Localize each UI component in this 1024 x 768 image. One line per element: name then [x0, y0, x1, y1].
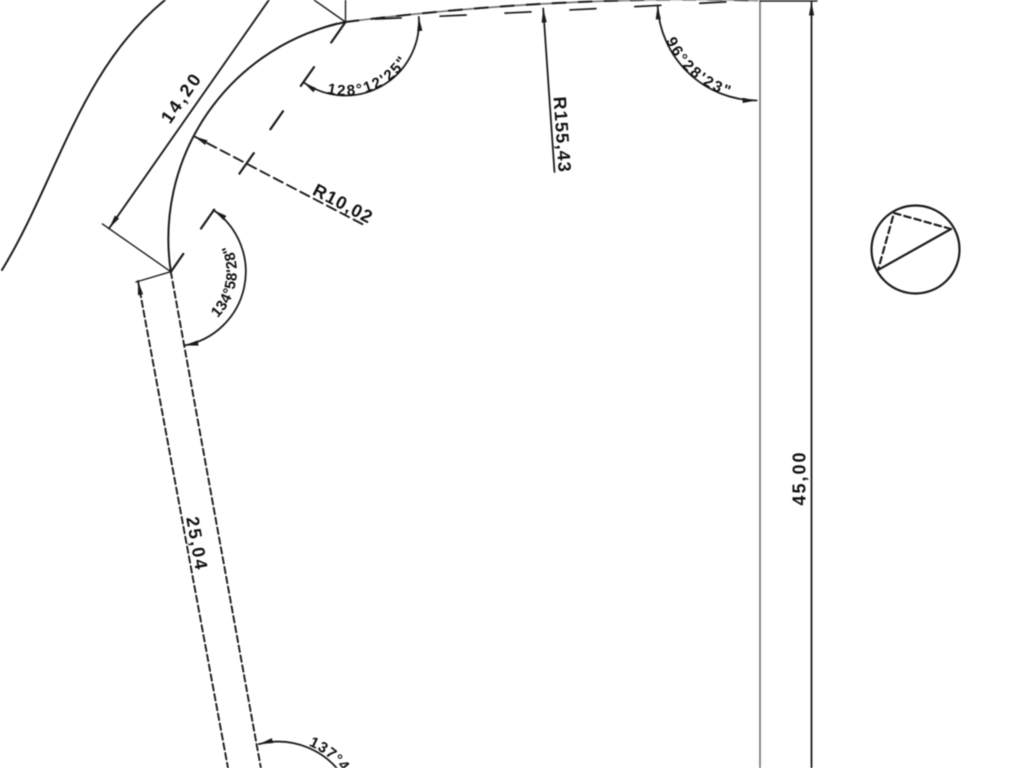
svg-text:45,00: 45,00	[790, 450, 810, 505]
